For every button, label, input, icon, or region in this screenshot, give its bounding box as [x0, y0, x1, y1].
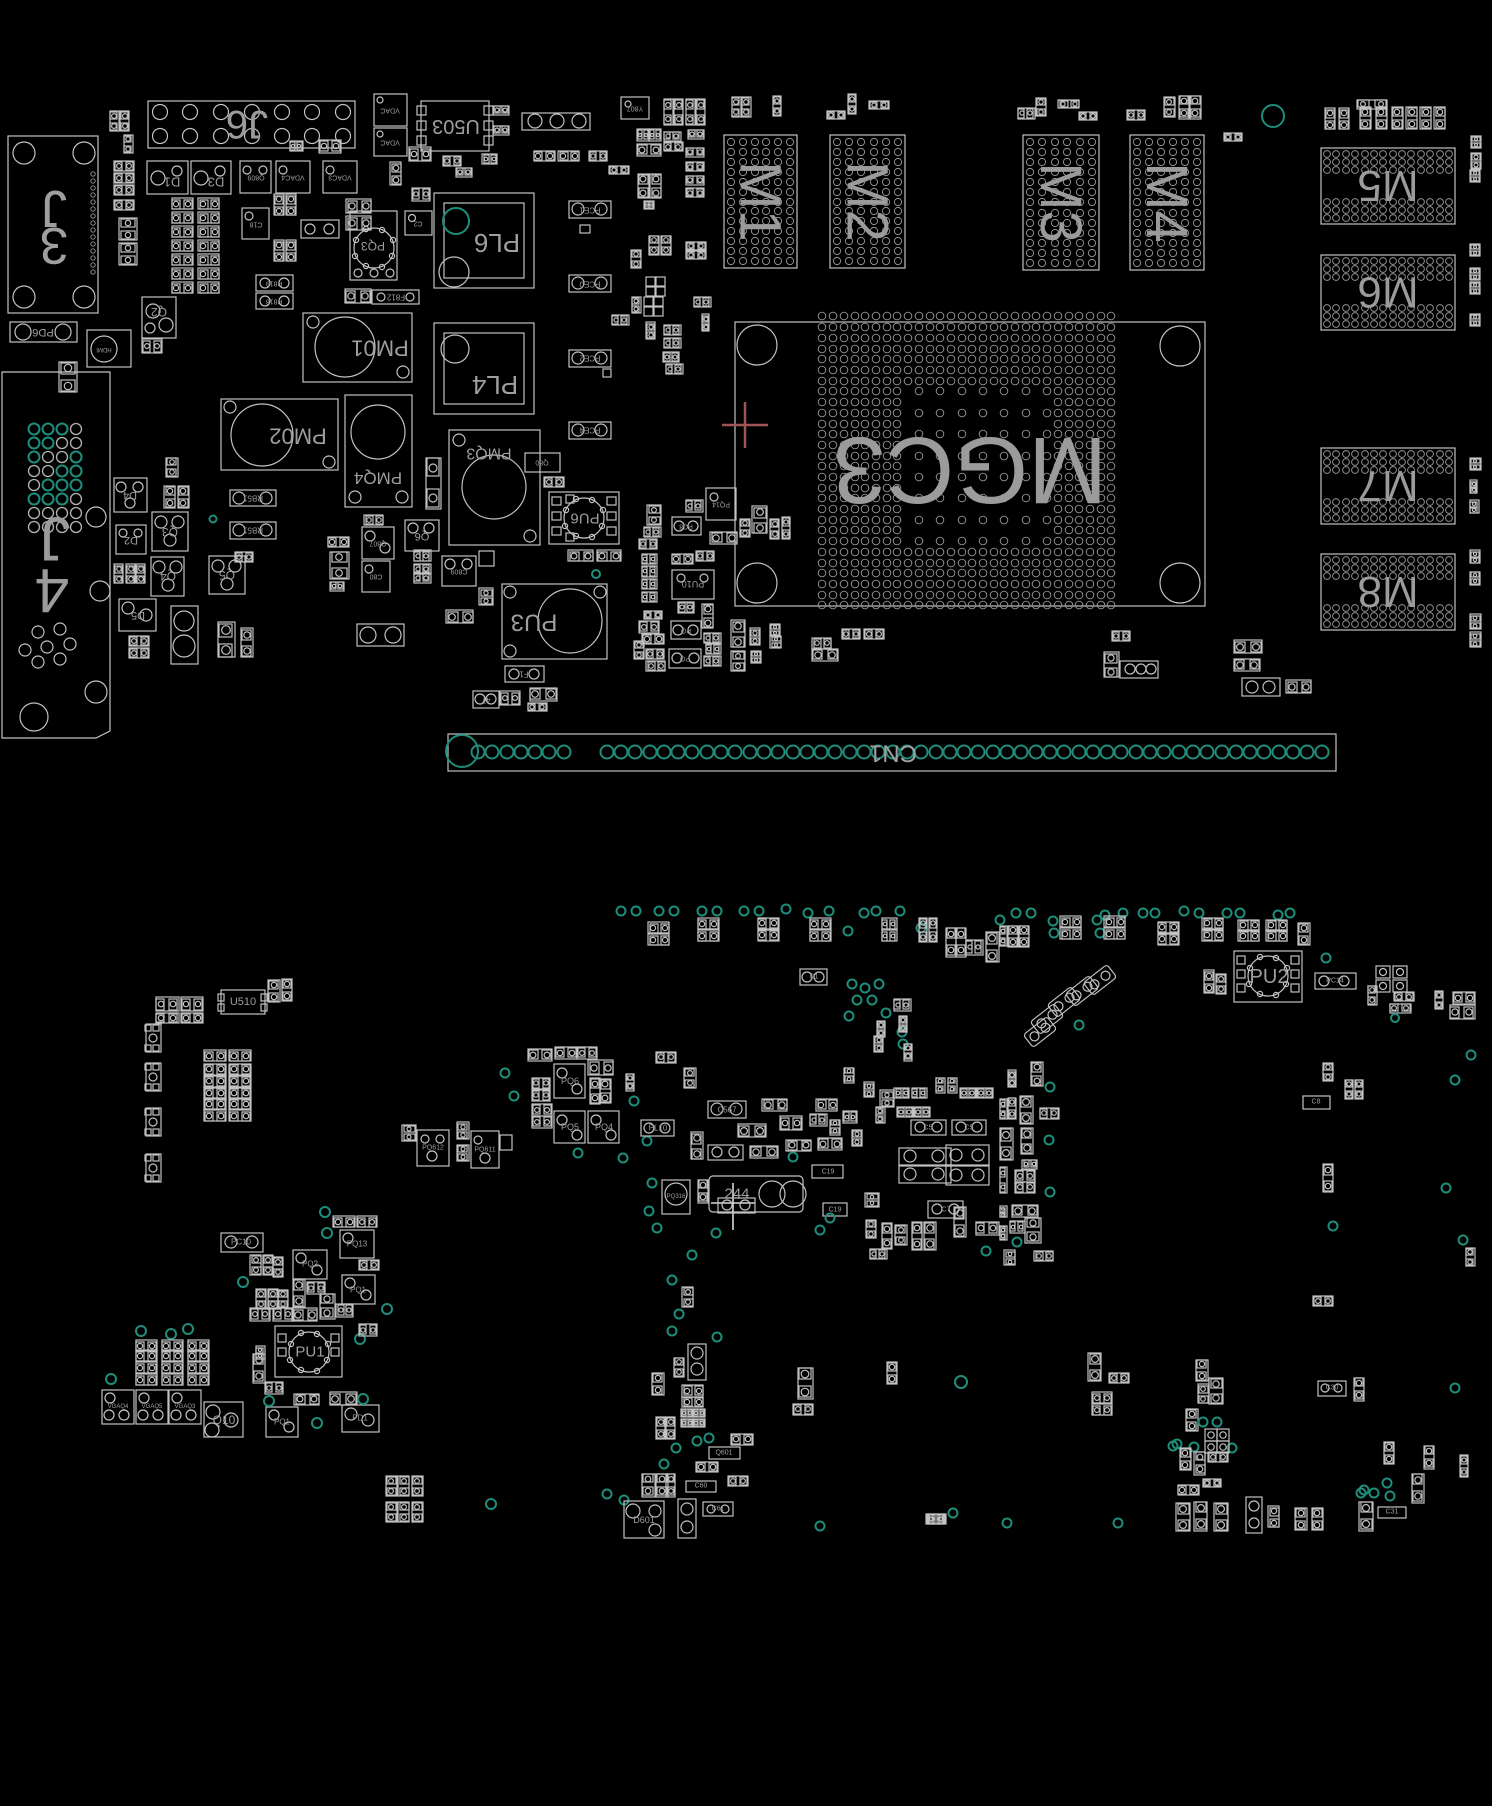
svg-text:PD6: PD6	[32, 326, 53, 338]
svg-text:VDAC4: VDAC4	[281, 174, 304, 181]
svg-text:PM02: PM02	[269, 424, 326, 449]
svg-text:Y807: Y807	[627, 105, 643, 112]
svg-text:RB51: RB51	[242, 526, 263, 535]
svg-text:MGC3: MGC3	[833, 417, 1107, 523]
svg-text:PC10: PC10	[231, 1238, 252, 1247]
svg-text:PQ4: PQ4	[595, 1122, 613, 1132]
svg-text:Q809: Q809	[247, 174, 264, 181]
svg-text:Q3: Q3	[162, 525, 178, 539]
svg-text:C80: C80	[369, 573, 382, 580]
svg-text:4: 4	[35, 556, 69, 625]
svg-text:M8: M8	[1357, 567, 1418, 616]
svg-text:F1: F1	[519, 670, 529, 679]
svg-text:M4: M4	[1134, 162, 1199, 243]
svg-text:PM01: PM01	[351, 336, 408, 361]
svg-text:PMQ4: PMQ4	[354, 469, 402, 488]
svg-text:PC8: PC8	[679, 523, 693, 530]
svg-text:Q10: Q10	[213, 1413, 236, 1427]
svg-text:PCE2: PCE2	[579, 354, 600, 363]
svg-text:M1: M1	[728, 161, 793, 242]
svg-text:PQ611: PQ611	[474, 1147, 495, 1154]
svg-text:C8: C8	[1312, 1099, 1321, 1106]
svg-text:PL4: PL4	[472, 370, 518, 400]
svg-text:M7: M7	[1357, 461, 1418, 510]
svg-text:PQ6: PQ6	[561, 1076, 579, 1086]
svg-text:PQ5: PQ5	[561, 1122, 579, 1132]
svg-text:PCE4: PCE4	[579, 426, 600, 435]
svg-text:Q601: Q601	[715, 1450, 732, 1457]
svg-text:Q807: Q807	[369, 540, 386, 547]
svg-text:U503: U503	[432, 115, 480, 137]
svg-text:VDAC: VDAC	[380, 139, 399, 146]
svg-text:C61: C61	[712, 1506, 725, 1513]
svg-text:HDMI: HDMI	[96, 346, 112, 352]
svg-text:PU1: PU1	[295, 1344, 324, 1361]
svg-text:C809: C809	[451, 568, 468, 575]
svg-text:D601: D601	[633, 1515, 655, 1525]
svg-text:RB51: RB51	[242, 494, 263, 503]
svg-text:D3: D3	[208, 175, 225, 190]
svg-text:M6: M6	[1357, 268, 1418, 317]
svg-text:C19: C19	[822, 1169, 835, 1176]
svg-text:VDAC: VDAC	[380, 107, 399, 114]
svg-text:C30: C30	[1326, 1385, 1339, 1392]
svg-text:U510: U510	[230, 996, 256, 1008]
svg-text:Q2: Q2	[151, 305, 167, 319]
svg-text:PQ14: PQ14	[712, 501, 730, 508]
svg-text:C1: C1	[810, 974, 819, 981]
svg-text:C31: C31	[1386, 1509, 1399, 1516]
svg-text:PU10: PU10	[682, 579, 705, 589]
svg-text:47: 47	[481, 696, 490, 705]
svg-text:PL10: PL10	[649, 1124, 668, 1133]
svg-text:CN1: CN1	[869, 740, 917, 767]
svg-text:M5: M5	[1357, 161, 1418, 210]
svg-text:Q80: Q80	[535, 459, 548, 466]
svg-text:C2: C2	[413, 220, 422, 227]
svg-text:Q5: Q5	[219, 568, 235, 582]
svg-text:PQ2: PQ2	[302, 1260, 319, 1269]
svg-text:PQ1: PQ1	[350, 1286, 367, 1295]
svg-text:C18: C18	[249, 221, 262, 228]
svg-text:PQ: PQ	[679, 655, 690, 662]
svg-text:PC14: PC14	[1326, 978, 1344, 985]
svg-text:PMQ3: PMQ3	[466, 445, 511, 462]
svg-text:VDAC3: VDAC3	[328, 174, 351, 181]
svg-text:J6: J6	[226, 102, 268, 146]
svg-text:Q4: Q4	[160, 569, 176, 583]
svg-text:F812: F812	[386, 293, 405, 302]
svg-text:C7: C7	[942, 1207, 951, 1214]
svg-text:Q6: Q6	[415, 530, 430, 542]
svg-text:PCE1: PCE1	[579, 206, 600, 215]
svg-text:D1: D1	[164, 175, 181, 190]
svg-text:PU3: PU3	[511, 609, 558, 636]
svg-text:C19: C19	[829, 1207, 842, 1214]
svg-text:VGAQ4: VGAQ4	[108, 1404, 129, 1410]
svg-text:C5: C5	[965, 1125, 974, 1132]
svg-text:PQ: PQ	[680, 627, 691, 634]
svg-text:PL6: PL6	[474, 228, 520, 258]
svg-text:VGAQ3: VGAQ3	[175, 1404, 196, 1410]
svg-text:D4: D4	[123, 489, 137, 501]
svg-text:C567: C567	[717, 1106, 737, 1115]
svg-text:3: 3	[40, 216, 69, 274]
svg-text:D5: D5	[131, 609, 145, 621]
svg-text:M2: M2	[835, 161, 900, 242]
svg-text:PQ13: PQ13	[347, 1240, 368, 1249]
svg-text:PU6: PU6	[570, 510, 599, 527]
svg-text:C5: C5	[924, 1125, 933, 1132]
svg-text:PU2: PU2	[1250, 966, 1289, 988]
svg-text:D2: D2	[124, 534, 138, 546]
svg-text:PQ612: PQ612	[422, 1145, 444, 1152]
svg-text:PD1: PD1	[352, 1414, 368, 1423]
svg-text:M3: M3	[1028, 162, 1093, 243]
svg-text:PQ316: PQ316	[667, 1194, 686, 1200]
svg-text:PCE0: PCE0	[579, 280, 600, 289]
svg-text:P819: P819	[266, 280, 282, 287]
svg-text:PQ3: PQ3	[361, 239, 385, 253]
svg-text:C60: C60	[695, 1483, 708, 1490]
svg-text:VGAQ5: VGAQ5	[142, 1404, 163, 1410]
svg-text:P818: P818	[266, 298, 282, 305]
svg-text:PQ1: PQ1	[274, 1418, 291, 1427]
